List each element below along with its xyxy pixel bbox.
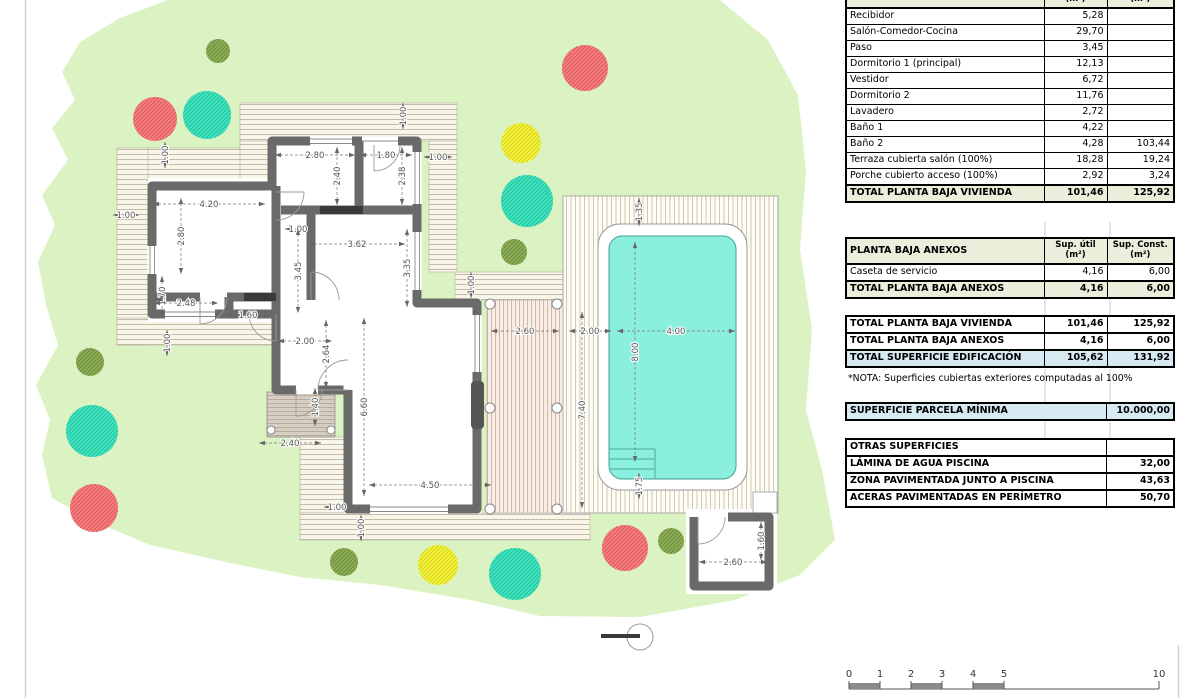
tree-teal (183, 91, 231, 139)
table-row: Dormitorio 1 (principal)12,13 (846, 57, 1174, 73)
row-value-1: 50,70 (1106, 490, 1174, 507)
row-label: ACERAS PAVIMENTADAS EN PERÍMETRO (846, 490, 1106, 507)
table-row: SUPERFICIE PARCELA MÍNIMA10.000,00 (846, 403, 1174, 420)
row-label: TOTAL SUPERFICIE EDIFICACIÓN (846, 350, 1044, 367)
dim-label: 1.60 (757, 532, 767, 551)
header-sup-const: Sup. Const.(m²) (1107, 0, 1174, 8)
dim-label: 1.00 (163, 334, 173, 353)
row-value-2 (1107, 73, 1174, 89)
tree-olive (76, 348, 104, 376)
header-sup-util: Sup. útil(m²) (1044, 238, 1107, 264)
table-row: Terraza cubierta salón (100%)18,2819,24 (846, 153, 1174, 169)
table-row: Recibidor5,28 (846, 8, 1174, 25)
dim-label: 1.00 (429, 153, 448, 163)
dim-label: 2.64 (322, 345, 332, 364)
scale-tick-label: 10 (1153, 669, 1166, 680)
row-value-2 (1107, 121, 1174, 137)
dimension: 1.00 (324, 503, 350, 513)
row-label: Vestidor (846, 73, 1044, 89)
row-label: Caseta de servicio (846, 264, 1044, 281)
row-value-1: 101,46 (1044, 316, 1107, 333)
header-sup-const: Sup. Const.(m²) (1107, 238, 1174, 264)
site-plan-sheet: 2.801.801.001.001.002.402.384.201.002.80… (0, 0, 1200, 698)
scale-segment (911, 683, 942, 689)
dimension: 1.00 (357, 515, 367, 541)
table-row: TOTAL PLANTA BAJA ANEXOS4,166,00 (846, 281, 1174, 298)
dim-label: 2.00 (296, 337, 315, 347)
dim-label: 3.35 (403, 259, 413, 278)
row-value-1: 4,28 (1044, 137, 1107, 153)
table-parcela-minima: SUPERFICIE PARCELA MÍNIMA10.000,00 (845, 402, 1175, 421)
row-value-2: 3,24 (1107, 169, 1174, 186)
row-label: TOTAL PLANTA BAJA VIVIENDA (846, 185, 1044, 202)
dim-label: 2.48 (177, 299, 196, 309)
table-row: Salón-Comedor-Cocina29,70 (846, 25, 1174, 41)
table-planta-baja-vivienda: PLANTA BAJA VIVIENDASup. útil(m²)Sup. Co… (845, 0, 1175, 203)
scale-tick-label: 3 (939, 669, 945, 680)
dim-label: 7.40 (578, 401, 588, 420)
row-value-2: 19,24 (1107, 153, 1174, 169)
tree-yellow (501, 123, 541, 163)
row-label: Salón-Comedor-Cocina (846, 25, 1044, 41)
table-row: Lavadero2,72 (846, 105, 1174, 121)
row-value-1 (1106, 439, 1174, 456)
table-row: Baño 24,28103,44 (846, 137, 1174, 153)
tree-red (602, 525, 648, 571)
row-value-1: 10.000,00 (1106, 403, 1174, 420)
dim-label: 4.50 (421, 481, 440, 491)
surfaces-note: *NOTA: Superficies cubiertas exteriores … (848, 373, 1178, 384)
table-row: Vestidor6,72 (846, 73, 1174, 89)
row-value-1: 2,72 (1044, 105, 1107, 121)
table-row: TOTAL PLANTA BAJA ANEXOS4,166,00 (846, 333, 1174, 350)
row-value-2: 6,00 (1107, 281, 1174, 298)
table-header-row: PLANTA BAJA VIVIENDASup. útil(m²)Sup. Co… (846, 0, 1174, 8)
row-label: Baño 2 (846, 137, 1044, 153)
table-otras-superficies: OTRAS SUPERFICIESLÁMINA DE AGUA PISCINA3… (845, 438, 1175, 508)
row-value-2: 125,92 (1107, 185, 1174, 202)
dim-label: 2.80 (306, 151, 325, 161)
row-value-1: 101,46 (1044, 185, 1107, 202)
dim-label: 1.00 (399, 107, 409, 126)
tree-red (133, 97, 177, 141)
dim-label: 2.40 (281, 439, 300, 449)
header-sup-util: Sup. útil(m²) (1044, 0, 1107, 8)
row-value-2 (1107, 41, 1174, 57)
row-value-2 (1107, 57, 1174, 73)
table-row: TOTAL PLANTA BAJA VIVIENDA101,46125,92 (846, 316, 1174, 333)
dim-label: 2.80 (177, 227, 187, 246)
row-value-1: 4,16 (1044, 281, 1107, 298)
pool-water (609, 236, 736, 479)
tree-olive (206, 39, 230, 63)
row-label: ZONA PAVIMENTADA JUNTO A PISCINA (846, 473, 1106, 490)
tree-teal (501, 175, 553, 227)
row-value-1: 3,45 (1044, 41, 1107, 57)
row-value-2: 6,00 (1107, 333, 1174, 350)
dim-label: 3.62 (348, 240, 367, 250)
dim-label: 1.00 (117, 211, 136, 221)
caseta-step (753, 492, 777, 513)
entry-porch (267, 392, 335, 437)
table-totales: TOTAL PLANTA BAJA VIVIENDA101,46125,92TO… (845, 315, 1175, 368)
row-value-1: 12,13 (1044, 57, 1107, 73)
table-row: Baño 14,22 (846, 121, 1174, 137)
dimension: 1.00 (161, 142, 171, 168)
dim-label: 1.60 (239, 311, 258, 321)
row-label: Porche cubierto acceso (100%) (846, 169, 1044, 186)
row-value-1: 6,72 (1044, 73, 1107, 89)
dim-label: 2.38 (398, 167, 408, 186)
row-value-1: 43,63 (1106, 473, 1174, 490)
table-row: ACERAS PAVIMENTADAS EN PERÍMETRO50,70 (846, 490, 1174, 507)
pool (598, 224, 747, 490)
compass-icon (601, 624, 653, 650)
row-label: Lavadero (846, 105, 1044, 121)
scale-tick-label: 1 (877, 669, 883, 680)
tree-red (70, 484, 118, 532)
scale-bar: 01234510 (846, 669, 1166, 689)
header-label: PLANTA BAJA ANEXOS (846, 238, 1044, 264)
dim-label: 1.00 (328, 503, 347, 513)
table-row: Caseta de servicio4,166,00 (846, 264, 1174, 281)
table-row: TOTAL SUPERFICIE EDIFICACIÓN105,62131,92 (846, 350, 1174, 367)
table-row: ZONA PAVIMENTADA JUNTO A PISCINA43,63 (846, 473, 1174, 490)
caseta-floor (686, 509, 777, 594)
row-value-1: 5,28 (1044, 8, 1107, 25)
row-label: Recibidor (846, 8, 1044, 25)
row-value-1: 4,16 (1044, 264, 1107, 281)
dim-label: 1.80 (377, 151, 396, 161)
row-value-1: 2,92 (1044, 169, 1107, 186)
row-value-2: 6,00 (1107, 264, 1174, 281)
tree-red (562, 45, 608, 91)
dim-label: 2.60 (724, 558, 743, 568)
table-row: Porche cubierto acceso (100%)2,923,24 (846, 169, 1174, 186)
row-value-1: 32,00 (1106, 456, 1174, 473)
tree-olive (658, 528, 684, 554)
row-label: Paso (846, 41, 1044, 57)
dim-label: 1.75 (635, 477, 645, 496)
table-row: LÁMINA DE AGUA PISCINA32,00 (846, 456, 1174, 473)
dim-label: 1.00 (467, 276, 477, 295)
tree-olive (330, 548, 358, 576)
row-value-2: 131,92 (1107, 350, 1174, 367)
dim-label: 4.00 (667, 327, 686, 337)
dimension: 1.00 (399, 103, 409, 129)
row-value-2 (1107, 25, 1174, 41)
dim-label: 3.45 (294, 262, 304, 281)
dim-label: 1.35 (635, 203, 645, 222)
row-value-1: 29,70 (1044, 25, 1107, 41)
scale-tick-label: 4 (970, 669, 976, 680)
dim-label: 2.00 (581, 327, 600, 337)
table-row: Paso3,45 (846, 41, 1174, 57)
row-label: SUPERFICIE PARCELA MÍNIMA (846, 403, 1106, 420)
tree-teal (66, 405, 118, 457)
table-row: TOTAL PLANTA BAJA VIVIENDA101,46125,92 (846, 185, 1174, 202)
row-label: Dormitorio 2 (846, 89, 1044, 105)
scale-segment (973, 683, 1004, 689)
row-value-2 (1107, 105, 1174, 121)
row-value-2: 103,44 (1107, 137, 1174, 153)
table-row: Dormitorio 211,76 (846, 89, 1174, 105)
dim-label: 2.40 (333, 167, 343, 186)
dim-label: 6.60 (360, 398, 370, 417)
header-label: PLANTA BAJA VIVIENDA (846, 0, 1044, 8)
row-value-1: 18,28 (1044, 153, 1107, 169)
row-label: TOTAL PLANTA BAJA ANEXOS (846, 333, 1044, 350)
row-value-2: 125,92 (1107, 316, 1174, 333)
dim-label: 1.40 (311, 398, 321, 417)
row-value-1: 4,22 (1044, 121, 1107, 137)
row-label: Terraza cubierta salón (100%) (846, 153, 1044, 169)
row-label: TOTAL PLANTA BAJA ANEXOS (846, 281, 1044, 298)
dim-label: 1.00 (161, 146, 171, 165)
dim-label: 8.00 (631, 343, 641, 362)
scale-tick-label: 0 (846, 669, 852, 680)
table-header-row: PLANTA BAJA ANEXOSSup. útil(m²)Sup. Cons… (846, 238, 1174, 264)
dimension: 1.00 (113, 211, 139, 221)
dim-label: 2.60 (516, 327, 535, 337)
row-label: Baño 1 (846, 121, 1044, 137)
table-planta-baja-anexos: PLANTA BAJA ANEXOSSup. útil(m²)Sup. Cons… (845, 237, 1175, 299)
dimension: 1.75 (635, 473, 645, 499)
scale-tick-label: 5 (1001, 669, 1007, 680)
row-value-2 (1107, 89, 1174, 105)
dim-label: 1.00 (357, 519, 367, 538)
row-label: TOTAL PLANTA BAJA VIVIENDA (846, 316, 1044, 333)
row-label: OTRAS SUPERFICIES (846, 439, 1106, 456)
row-value-1: 105,62 (1044, 350, 1107, 367)
row-label: LÁMINA DE AGUA PISCINA (846, 456, 1106, 473)
tree-yellow (418, 545, 458, 585)
scale-tick-label: 2 (908, 669, 914, 680)
table-row: OTRAS SUPERFICIES (846, 439, 1174, 456)
row-value-1: 4,16 (1044, 333, 1107, 350)
row-value-2 (1107, 8, 1174, 25)
scale-segment (849, 683, 880, 689)
dimension: 1.00 (163, 330, 173, 356)
dimension: 1.00 (467, 272, 477, 298)
tree-olive (501, 239, 527, 265)
row-value-1: 11,76 (1044, 89, 1107, 105)
tree-teal (489, 548, 541, 600)
dim-label: 4.20 (200, 200, 219, 210)
row-label: Dormitorio 1 (principal) (846, 57, 1044, 73)
